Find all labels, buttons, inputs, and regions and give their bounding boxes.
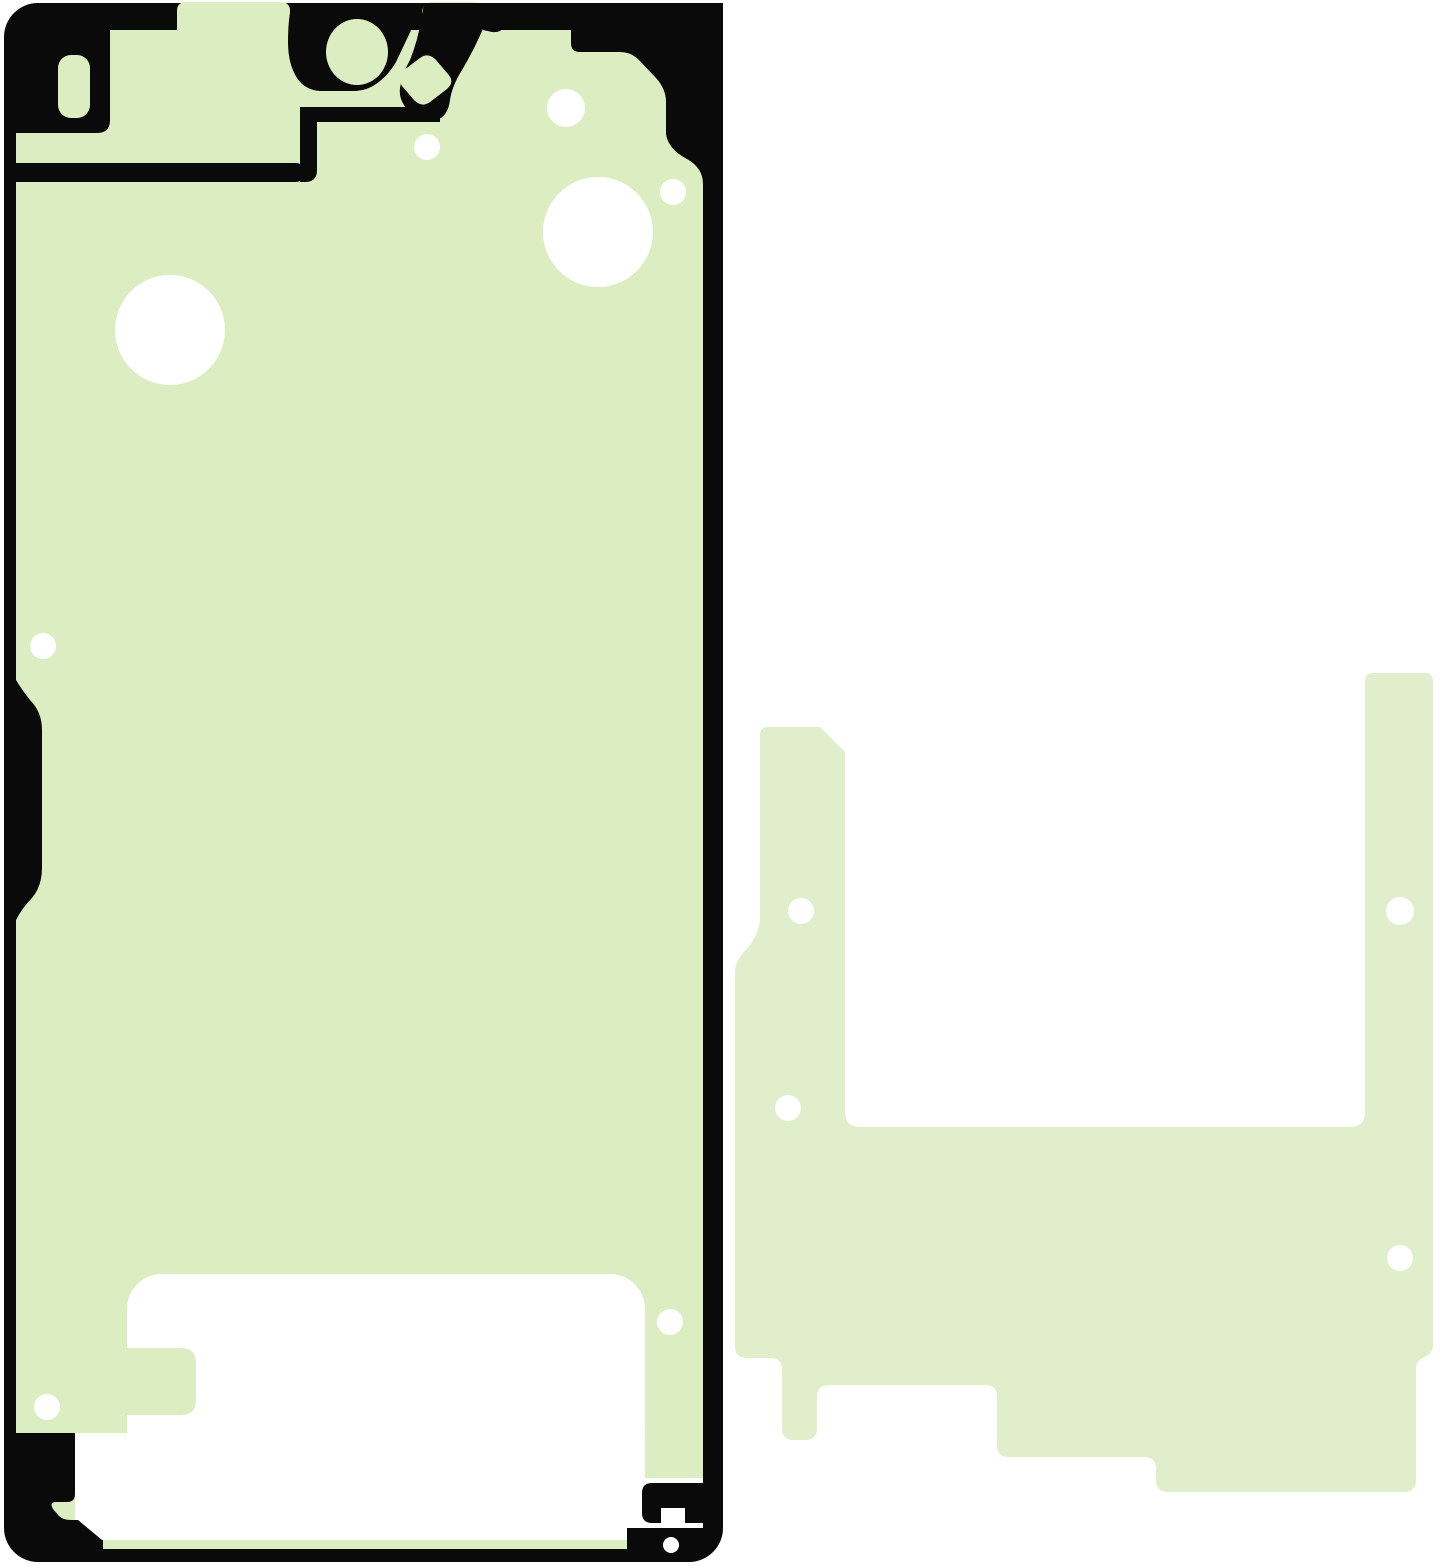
- left-edge-bump: [16, 680, 42, 920]
- hole-dot-top: [414, 134, 440, 160]
- hole-small-right: [660, 179, 686, 205]
- rear-hole-top-left: [788, 898, 814, 924]
- product-image: [0, 0, 1445, 1566]
- sensor-slot-window: [58, 55, 90, 118]
- adhesive-kit-svg: [0, 0, 1445, 1566]
- rear-hole-top-right: [1386, 897, 1414, 925]
- bottom-right-foot-notch: [661, 1508, 685, 1523]
- camera-window: [326, 19, 388, 85]
- top-edge-tab-left: [177, 2, 290, 38]
- rear-adhesive-body: [735, 673, 1433, 1492]
- rear-hole-lower-right: [1387, 1245, 1413, 1271]
- hole-bottom-left: [34, 1394, 60, 1420]
- hole-dot-left-edge: [30, 633, 56, 659]
- hole-upper-mid: [547, 89, 585, 127]
- bottom-window-tab: [127, 1348, 196, 1415]
- adhesive-kit-shapes: [4, 2, 1433, 1562]
- lower-strip: [16, 163, 305, 182]
- hole-large-right: [543, 177, 653, 287]
- rear-hole-lower-left: [775, 1095, 801, 1121]
- hole-large-left: [115, 275, 225, 385]
- bottom-right-notch-dot: [663, 1537, 679, 1553]
- bottom-green-strip: [103, 1540, 627, 1549]
- bottom-band: [75, 1433, 645, 1540]
- bottom-right-foot-lower: [627, 1528, 703, 1540]
- hole-bottom-right: [657, 1309, 683, 1335]
